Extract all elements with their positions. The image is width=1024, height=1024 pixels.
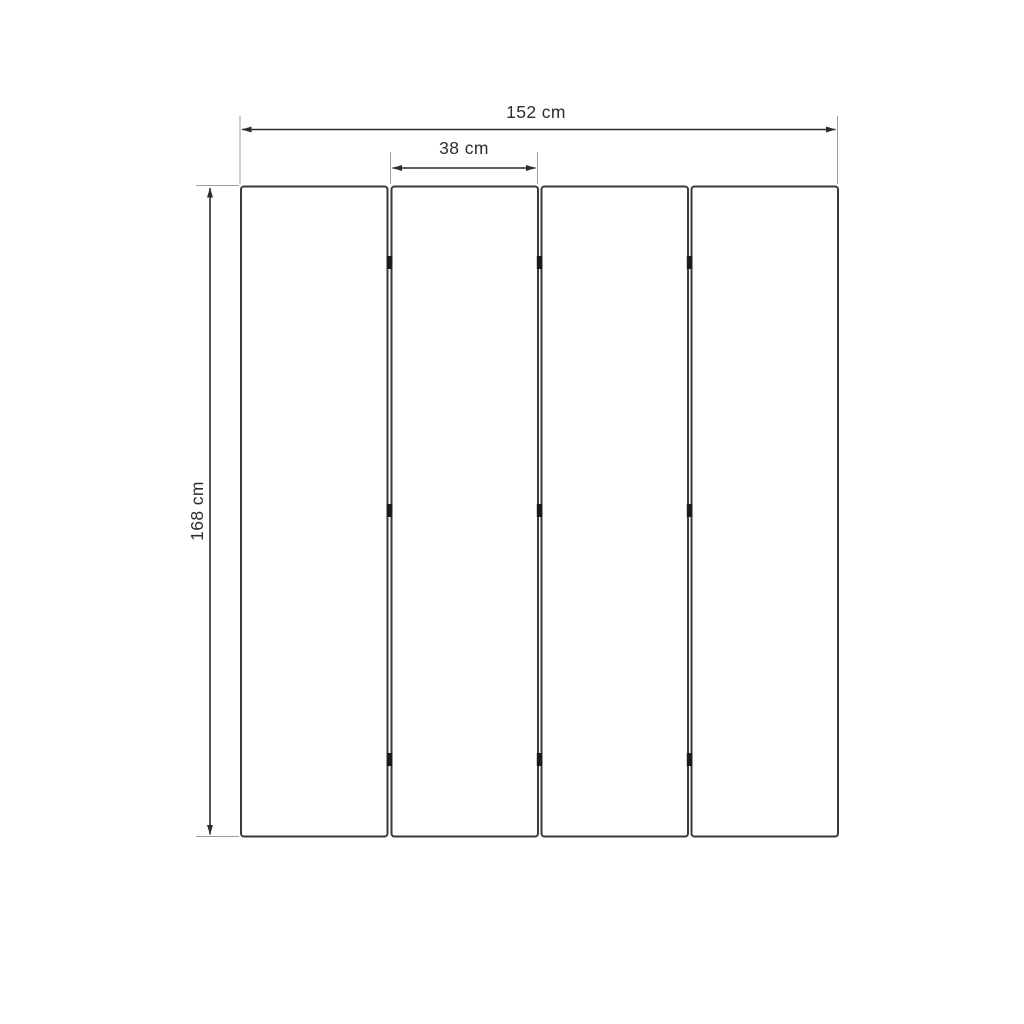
hinge-marker [537, 256, 543, 269]
hinge-marker [537, 504, 543, 517]
hinge-marker [387, 504, 393, 517]
panel-4 [692, 187, 839, 837]
panel-2 [392, 187, 539, 837]
hinge-marker [387, 753, 393, 766]
dim-height-label: 168 cm [187, 481, 207, 541]
dimension-drawing: 152 cm 38 cm 168 cm [0, 0, 1024, 1024]
drawing-page: 152 cm 38 cm 168 cm [0, 0, 1024, 1024]
dim-panel-width-label: 38 cm [439, 138, 489, 158]
dim-total-width-label: 152 cm [506, 102, 566, 122]
panel-1 [241, 187, 388, 837]
hinge-marker [687, 256, 693, 269]
hinge-marker [387, 256, 393, 269]
hinge-marker [687, 753, 693, 766]
hinge-marker [537, 753, 543, 766]
panel-3 [542, 187, 689, 837]
hinge-marker [687, 504, 693, 517]
